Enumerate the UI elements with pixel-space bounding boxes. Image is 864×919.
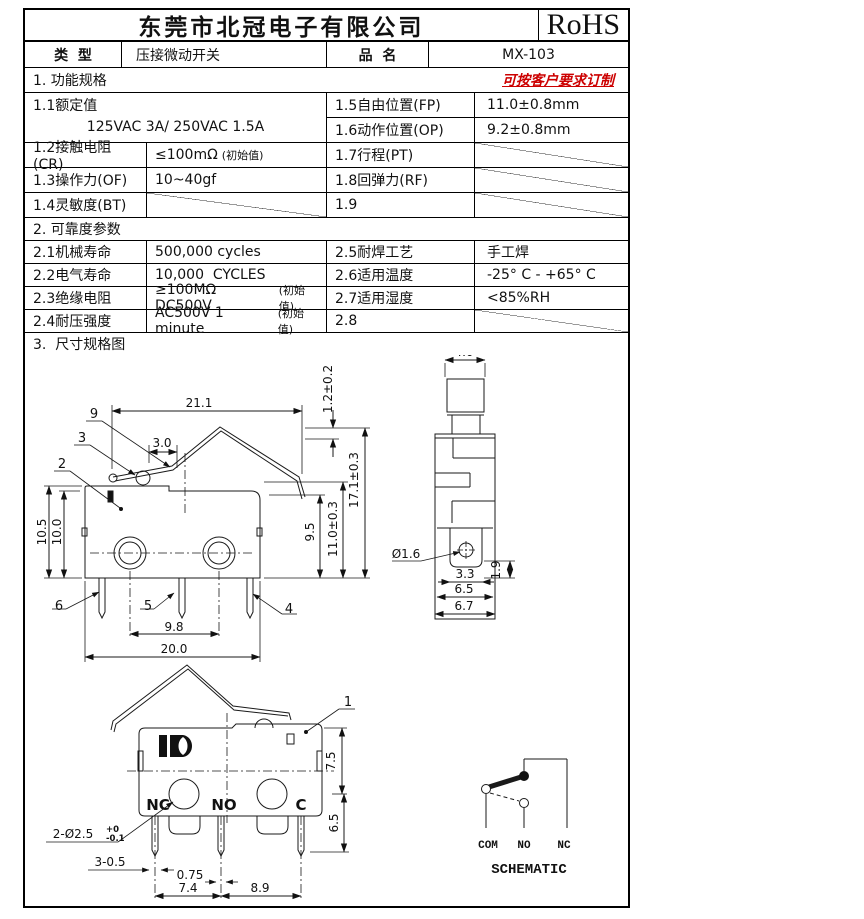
fp-label: 1.5自由位置(FP) bbox=[327, 93, 475, 117]
row-1-3: 1.3操作力(OF) 10~40gf 1.8回弹力(RF) bbox=[25, 168, 628, 193]
dim-hole-2-5: 2-Ø2.5 bbox=[53, 827, 94, 841]
type-label: 类 型 bbox=[25, 42, 122, 67]
fp-value: 11.0±0.8mm bbox=[475, 93, 628, 117]
row-2-4: 2.4耐压强度 AC500V 1 minute(初始值) 2.8 bbox=[25, 310, 628, 333]
mech-life-label: 2.1机械寿命 bbox=[25, 241, 147, 263]
dim-6-7: 6.7 bbox=[454, 599, 473, 613]
insulation-label: 2.3绝缘电阻 bbox=[25, 287, 147, 309]
schematic-nc-label: NC bbox=[557, 840, 571, 852]
dim-1-2: 1.2±0.2 bbox=[321, 365, 335, 413]
contact-resistance-value: ≤100mΩ(初始值) bbox=[147, 143, 327, 167]
sheet-border: 东莞市北冠电子有限公司 RoHS 类 型 压接微动开关 品 名 MX-103 1… bbox=[23, 8, 630, 908]
temp-label: 2.6适用温度 bbox=[327, 264, 475, 286]
contact-resistance-label: 1.2接触电阻(CR) bbox=[25, 143, 147, 167]
operating-force-label: 1.3操作力(OF) bbox=[25, 168, 147, 192]
section3-title: 3. 尺寸规格图 bbox=[25, 333, 133, 355]
schematic-no-label: NO bbox=[517, 840, 531, 852]
temp-value: -25° C - +65° C bbox=[475, 264, 628, 286]
rating-rows: 1.1额定值 125VAC 3A/ 250VAC 1.5A 1.5自由位置(FP… bbox=[25, 93, 628, 143]
schematic-title: SCHEMATIC bbox=[491, 862, 567, 878]
dim-9-5: 9.5 bbox=[303, 522, 317, 541]
terminal-c-label: C bbox=[295, 796, 306, 814]
rebound-label: 1.8回弹力(RF) bbox=[327, 168, 475, 192]
wv-note: (初始值) bbox=[278, 305, 318, 337]
dim-hole-1-6: Ø1.6 bbox=[392, 547, 421, 561]
humidity-label: 2.7适用湿度 bbox=[327, 287, 475, 309]
travel-label: 1.7行程(PT) bbox=[327, 143, 475, 167]
part-3: 3 bbox=[78, 431, 86, 446]
row-1-2: 1.2接触电阻(CR) ≤100mΩ(初始值) 1.7行程(PT) bbox=[25, 143, 628, 168]
meta-row: 类 型 压接微动开关 品 名 MX-103 bbox=[25, 42, 628, 68]
row-1-9-label: 1.9 bbox=[327, 193, 475, 217]
wv-value: AC500V 1 minute bbox=[155, 305, 274, 337]
dim-8-9: 8.9 bbox=[250, 881, 269, 895]
company-name: 东莞市北冠电子有限公司 bbox=[25, 10, 539, 40]
humidity-value: <85%RH bbox=[475, 287, 628, 309]
cr-value: ≤100mΩ bbox=[155, 147, 218, 163]
solder-label: 2.5耐焊工艺 bbox=[327, 241, 475, 263]
section1-title: 1. 功能规格 bbox=[25, 68, 115, 92]
operating-force-value: 10~40gf bbox=[147, 168, 327, 192]
part-2: 2 bbox=[58, 457, 66, 472]
rohs-mark: RoHS bbox=[539, 10, 628, 40]
custom-note: 可按客户要求订制 bbox=[494, 68, 622, 92]
dim-3-0: 3.0 bbox=[152, 436, 171, 450]
row-2-8-label: 2.8 bbox=[327, 310, 475, 332]
part-1: 1 bbox=[344, 695, 352, 710]
dim-6-5-side: 6.5 bbox=[454, 582, 473, 596]
datasheet-page: 东莞市北冠电子有限公司 RoHS 类 型 压接微动开关 品 名 MX-103 1… bbox=[0, 0, 864, 919]
header-row: 东莞市北冠电子有限公司 RoHS bbox=[25, 10, 628, 42]
op-label: 1.6动作位置(OP) bbox=[327, 118, 475, 142]
fp-row: 1.5自由位置(FP) 11.0±0.8mm bbox=[327, 93, 628, 118]
part-6: 6 bbox=[55, 599, 63, 614]
row-1-4: 1.4灵敏度(BT) 1.9 bbox=[25, 193, 628, 218]
dim-3-3: 3.3 bbox=[455, 567, 474, 581]
dim-21-1: 21.1 bbox=[186, 396, 213, 410]
dim-0-75: 0.75 bbox=[177, 868, 204, 882]
part-9: 9 bbox=[90, 407, 98, 422]
dim-6-5-front: 6.5 bbox=[327, 813, 341, 832]
rating-label: 1.1额定值 bbox=[25, 93, 326, 117]
part-4: 4 bbox=[285, 602, 293, 617]
withstand-label: 2.4耐压强度 bbox=[25, 310, 147, 332]
section2-row: 2. 可靠度参数 bbox=[25, 218, 628, 241]
schematic-drawing bbox=[482, 759, 568, 828]
dim-17-1: 17.1±0.3 bbox=[347, 452, 361, 508]
terminal-nc-label: NC bbox=[146, 796, 170, 814]
schematic-com-label: COM bbox=[478, 840, 498, 852]
dim-7-4: 7.4 bbox=[178, 881, 197, 895]
dim-10-0: 10.0 bbox=[50, 519, 64, 546]
dim-9-8: 9.8 bbox=[164, 620, 183, 634]
dim-3-05: 3-0.5 bbox=[94, 855, 125, 869]
dim-11-0: 11.0±0.3 bbox=[326, 501, 340, 557]
row-2-1: 2.1机械寿命 500,000 cycles 2.5耐焊工艺 手工焊 bbox=[25, 241, 628, 264]
op-value: 9.2±0.8mm bbox=[475, 118, 628, 142]
terminal-no-label: NO bbox=[211, 796, 236, 814]
solder-value: 手工焊 bbox=[475, 241, 628, 263]
rating-cell: 1.1额定值 125VAC 3A/ 250VAC 1.5A bbox=[25, 93, 327, 142]
type-value: 压接微动开关 bbox=[122, 42, 327, 67]
row-1-9-value-empty bbox=[475, 193, 628, 217]
row-2-8-value-empty bbox=[475, 310, 628, 332]
sensitivity-label: 1.4灵敏度(BT) bbox=[25, 193, 147, 217]
dim-20-0: 20.0 bbox=[161, 642, 188, 656]
lever-view-drawing bbox=[44, 405, 370, 662]
dim-4-0: 4.0 bbox=[454, 355, 473, 359]
rebound-value-empty bbox=[475, 168, 628, 192]
row-2-3: 2.3绝缘电阻 ≥100MΩ DC500V(初始值) 2.7适用湿度 <85%R… bbox=[25, 287, 628, 310]
dim-7-5: 7.5 bbox=[324, 751, 338, 770]
cr-note: (初始值) bbox=[222, 147, 264, 163]
section3-row: 3. 尺寸规格图 bbox=[25, 333, 628, 355]
part-5: 5 bbox=[144, 599, 152, 614]
withstand-value: AC500V 1 minute(初始值) bbox=[147, 310, 327, 332]
brand-logo bbox=[159, 735, 192, 757]
dimension-drawings: 21.1 1.2±0.2 3.0 9 3 2 10.5 10.0 9.5 11.… bbox=[25, 355, 628, 907]
elec-life-label: 2.2电气寿命 bbox=[25, 264, 147, 286]
travel-value-empty bbox=[475, 143, 628, 167]
dim-hole-tol-dn: -0.1 bbox=[106, 834, 125, 844]
product-name-value: MX-103 bbox=[429, 42, 628, 67]
front-view-drawing bbox=[46, 665, 355, 898]
dim-1-9: 1.9 bbox=[489, 560, 503, 579]
section2-title: 2. 可靠度参数 bbox=[25, 218, 129, 240]
dim-10-5: 10.5 bbox=[35, 519, 49, 546]
section1-row: 1. 功能规格 可按客户要求订制 bbox=[25, 68, 628, 93]
sensitivity-value-empty bbox=[147, 193, 327, 217]
row-2-2: 2.2电气寿命 10,000 CYCLES 2.6适用温度 -25° C - +… bbox=[25, 264, 628, 287]
fp-op-cells: 1.5自由位置(FP) 11.0±0.8mm 1.6动作位置(OP) 9.2±0… bbox=[327, 93, 628, 142]
product-name-label: 品 名 bbox=[327, 42, 429, 67]
mech-life-value: 500,000 cycles bbox=[147, 241, 327, 263]
op-row: 1.6动作位置(OP) 9.2±0.8mm bbox=[327, 118, 628, 142]
rating-value: 125VAC 3A/ 250VAC 1.5A bbox=[25, 119, 326, 135]
